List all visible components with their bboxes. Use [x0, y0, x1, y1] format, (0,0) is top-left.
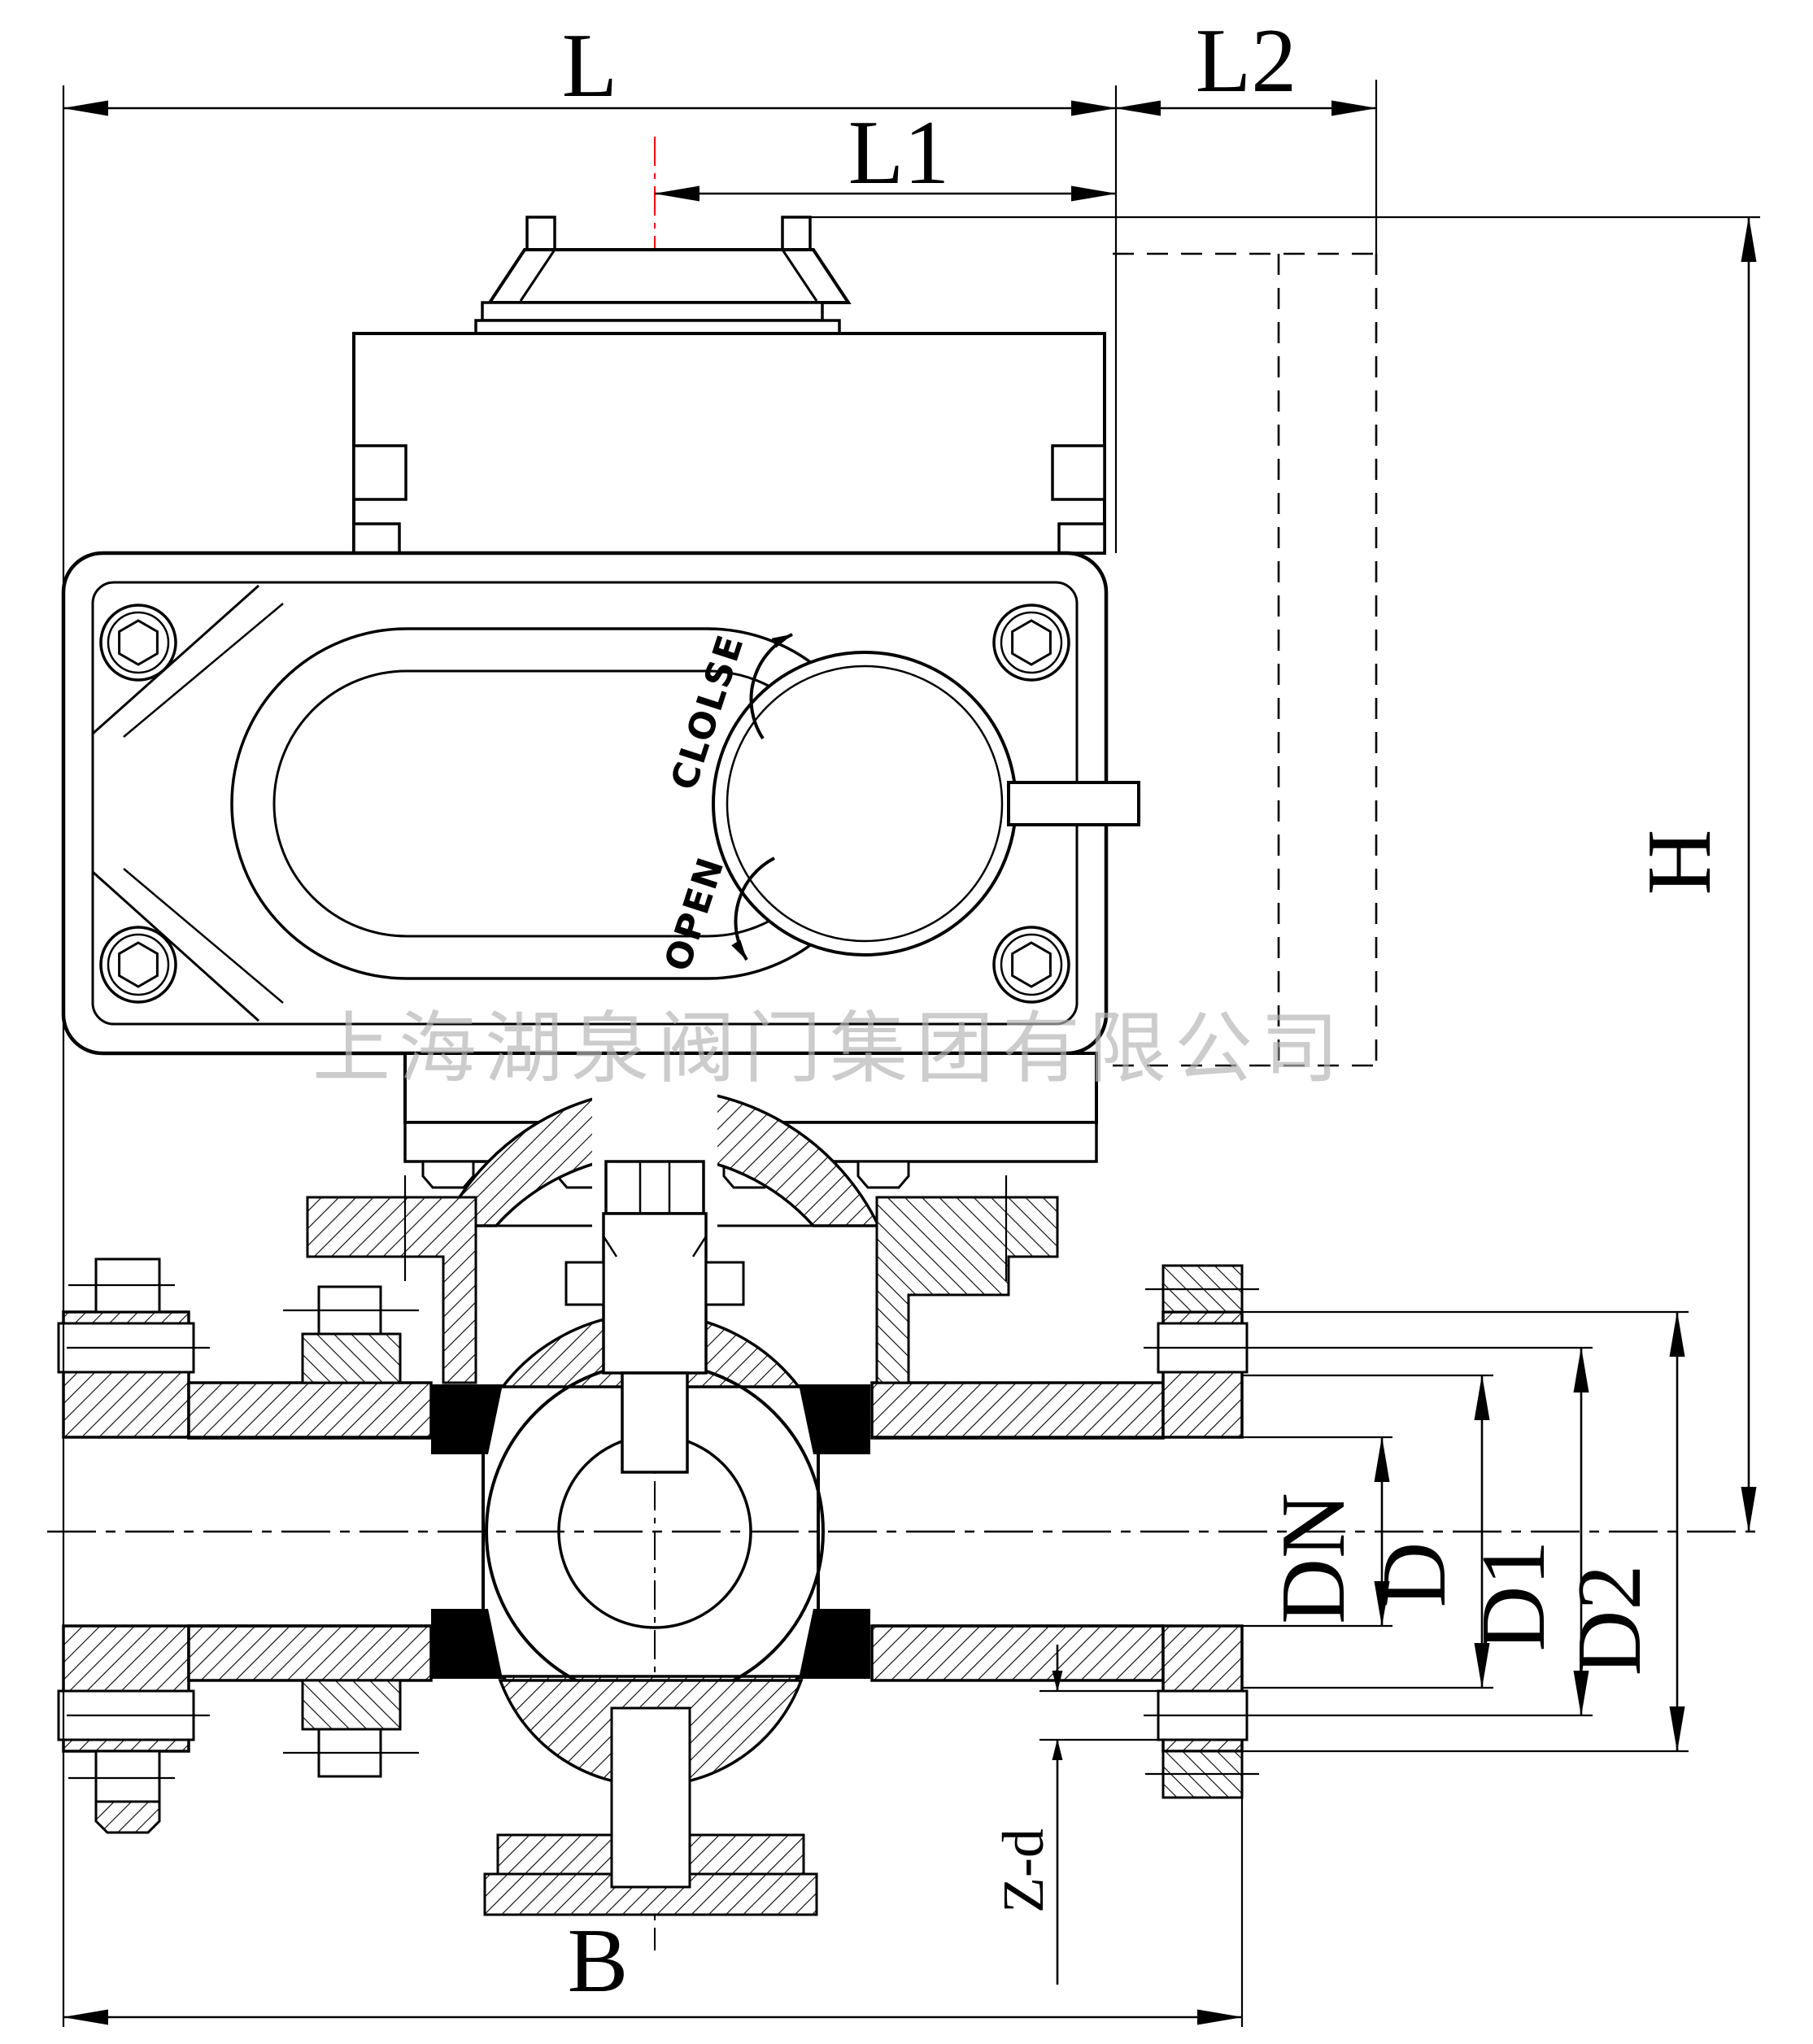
cap-corner-tab-right [782, 217, 810, 250]
drain-column [612, 1708, 690, 1887]
dimension-H-label: H [1629, 830, 1730, 896]
bracket-foot [423, 1161, 473, 1188]
dimension-B-label: B [568, 1911, 629, 2011]
packing-nut-right [706, 1262, 743, 1305]
dimension-D2-label: D2 [1559, 1565, 1660, 1676]
left-flange-nut-bottom [96, 1802, 159, 1833]
cap-base-band [482, 303, 822, 320]
stem-lower [622, 1373, 687, 1472]
left-step-block-bottom [303, 1680, 400, 1729]
dimension-D1-label: D1 [1463, 1541, 1564, 1652]
valve-drawing: CLOLSE OPEN [0, 0, 1813, 2044]
housing-tab-left [354, 446, 406, 499]
housing-tab-right [1052, 446, 1105, 499]
housing-corner-tab-right [1059, 524, 1105, 553]
packing-nut-left [566, 1262, 604, 1305]
body-wall-bottom-right [872, 1626, 1163, 1680]
actuator-top-cap [490, 250, 848, 303]
cap-base-band2 [476, 320, 839, 333]
bracket-foot [858, 1161, 909, 1188]
stem-gland [604, 1214, 706, 1373]
left-flange-stud-bottom [96, 1751, 159, 1802]
housing-corner-tab-left [354, 524, 399, 553]
stem-upper [606, 1161, 704, 1214]
body-wall-bottom-left [189, 1626, 431, 1680]
left-step-block-top [303, 1334, 400, 1383]
dimension-L1-label: L1 [848, 102, 949, 203]
body-wall-top-left [189, 1383, 431, 1438]
body-wall-top-right [872, 1383, 1163, 1438]
dimension-Zd-label: Z-d [991, 1828, 1056, 1913]
dimension-DN-label: DN [1263, 1493, 1364, 1624]
dial-outer [713, 652, 1016, 955]
dimension-L-label: L [562, 15, 617, 116]
drawing-canvas: CLOLSE OPEN [0, 0, 1813, 2044]
watermark-text: 上海湖泉阀门集团有限公司 [312, 1005, 1347, 1092]
actuator-housing [354, 333, 1105, 553]
cap-corner-tab-left [527, 217, 555, 250]
dial-handle [1009, 782, 1139, 825]
dimension-D-label: D [1364, 1542, 1465, 1608]
dimension-L2-label: L2 [1196, 11, 1297, 111]
